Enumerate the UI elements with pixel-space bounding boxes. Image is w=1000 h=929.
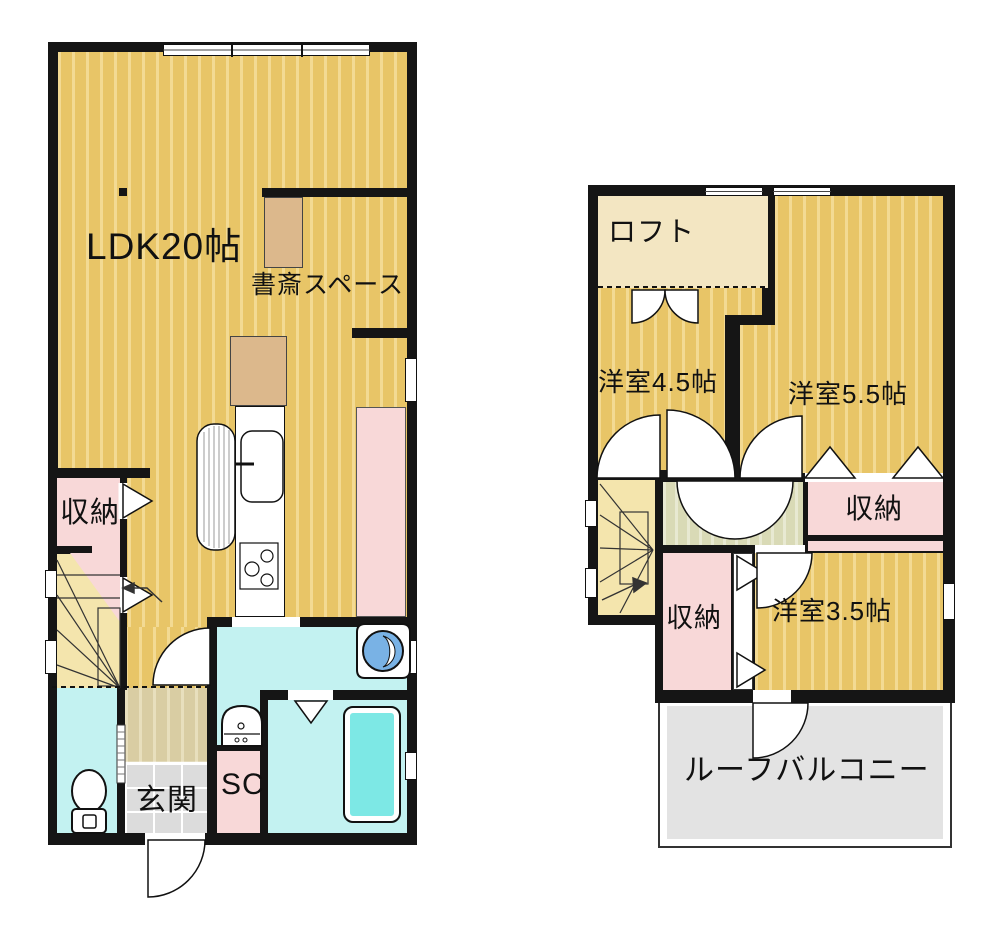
wall-toilet-right	[117, 688, 125, 833]
window-ldk-top	[163, 44, 370, 56]
label-entrance: 玄関	[136, 786, 198, 816]
room-5-5-notch	[740, 325, 775, 473]
study-desk	[264, 197, 303, 268]
kitchen-counter	[235, 406, 285, 617]
window-stair-left-2f-a	[585, 500, 597, 527]
window-3-5-right	[943, 583, 955, 620]
wall-sc-top	[217, 745, 260, 751]
window-loft-top	[705, 187, 763, 196]
label-roof-balcony: ルーフバルコニー	[684, 756, 930, 786]
wall-washroom-left	[207, 617, 217, 838]
hall-1f	[125, 688, 207, 763]
label-storage-2f-right: 収納	[845, 495, 903, 523]
kitchen-side-counter	[356, 407, 406, 617]
floorplan-canvas: LDK20帖 書斎スペース 収納 玄関 SC ロフト 洋室4.5帖 洋室5.5帖…	[0, 0, 1000, 929]
wall-bath-left	[260, 690, 268, 833]
wall-study	[262, 188, 407, 197]
door-gap-balcony	[753, 690, 791, 703]
door-gap-washroom	[232, 617, 300, 627]
room-ldk-lower	[125, 627, 207, 688]
window-stair-left-1f-a	[45, 570, 57, 598]
label-room-3-5: 洋室3.5帖	[772, 598, 892, 624]
pillar	[119, 188, 127, 196]
window-study-right	[405, 358, 417, 402]
label-study: 書斎スペース	[251, 273, 404, 298]
label-storage-2f-left: 収納	[666, 605, 722, 632]
room-washroom-column	[217, 690, 260, 745]
door-gap-bath	[288, 690, 333, 700]
second-floor-cutout	[588, 625, 655, 703]
wall-storage-top-1f	[48, 468, 150, 478]
closet-door-strip-left	[733, 553, 753, 690]
label-ldk: LDK20帖	[86, 228, 242, 265]
door-entrance	[148, 840, 205, 897]
refrigerator	[230, 336, 287, 406]
window-bath-right	[405, 752, 417, 780]
room-toilet	[57, 688, 117, 833]
label-room-4-5: 洋室4.5帖	[598, 369, 718, 395]
room-washroom	[217, 627, 407, 690]
stairs-1f	[57, 553, 120, 690]
label-loft: ロフト	[608, 218, 695, 246]
label-shoe-closet: SC	[221, 770, 265, 800]
wall-bath-top	[260, 690, 417, 700]
door-gap-entrance	[145, 833, 205, 845]
landing-2f	[663, 482, 803, 545]
window-washroom-right	[405, 640, 417, 674]
wall-stair-stub-1f	[48, 546, 92, 554]
closet-door-strip-5-5	[805, 473, 943, 482]
wall-2f-bottomleft	[655, 615, 663, 703]
storage-strip-2f	[808, 541, 943, 551]
wall-stub-right	[352, 328, 407, 338]
window-stair-left-1f-b	[45, 640, 57, 674]
bathtub	[343, 706, 401, 823]
window-5-5-top	[773, 187, 831, 196]
label-storage-1f: 収納	[60, 499, 120, 528]
window-stair-left-2f-b	[585, 568, 597, 598]
label-room-5-5: 洋室5.5帖	[788, 381, 908, 407]
wall-storage-side-1f	[120, 478, 127, 690]
door-gap-3-5	[755, 545, 805, 553]
room-5-5	[775, 196, 943, 473]
stairs-2f	[598, 480, 655, 615]
